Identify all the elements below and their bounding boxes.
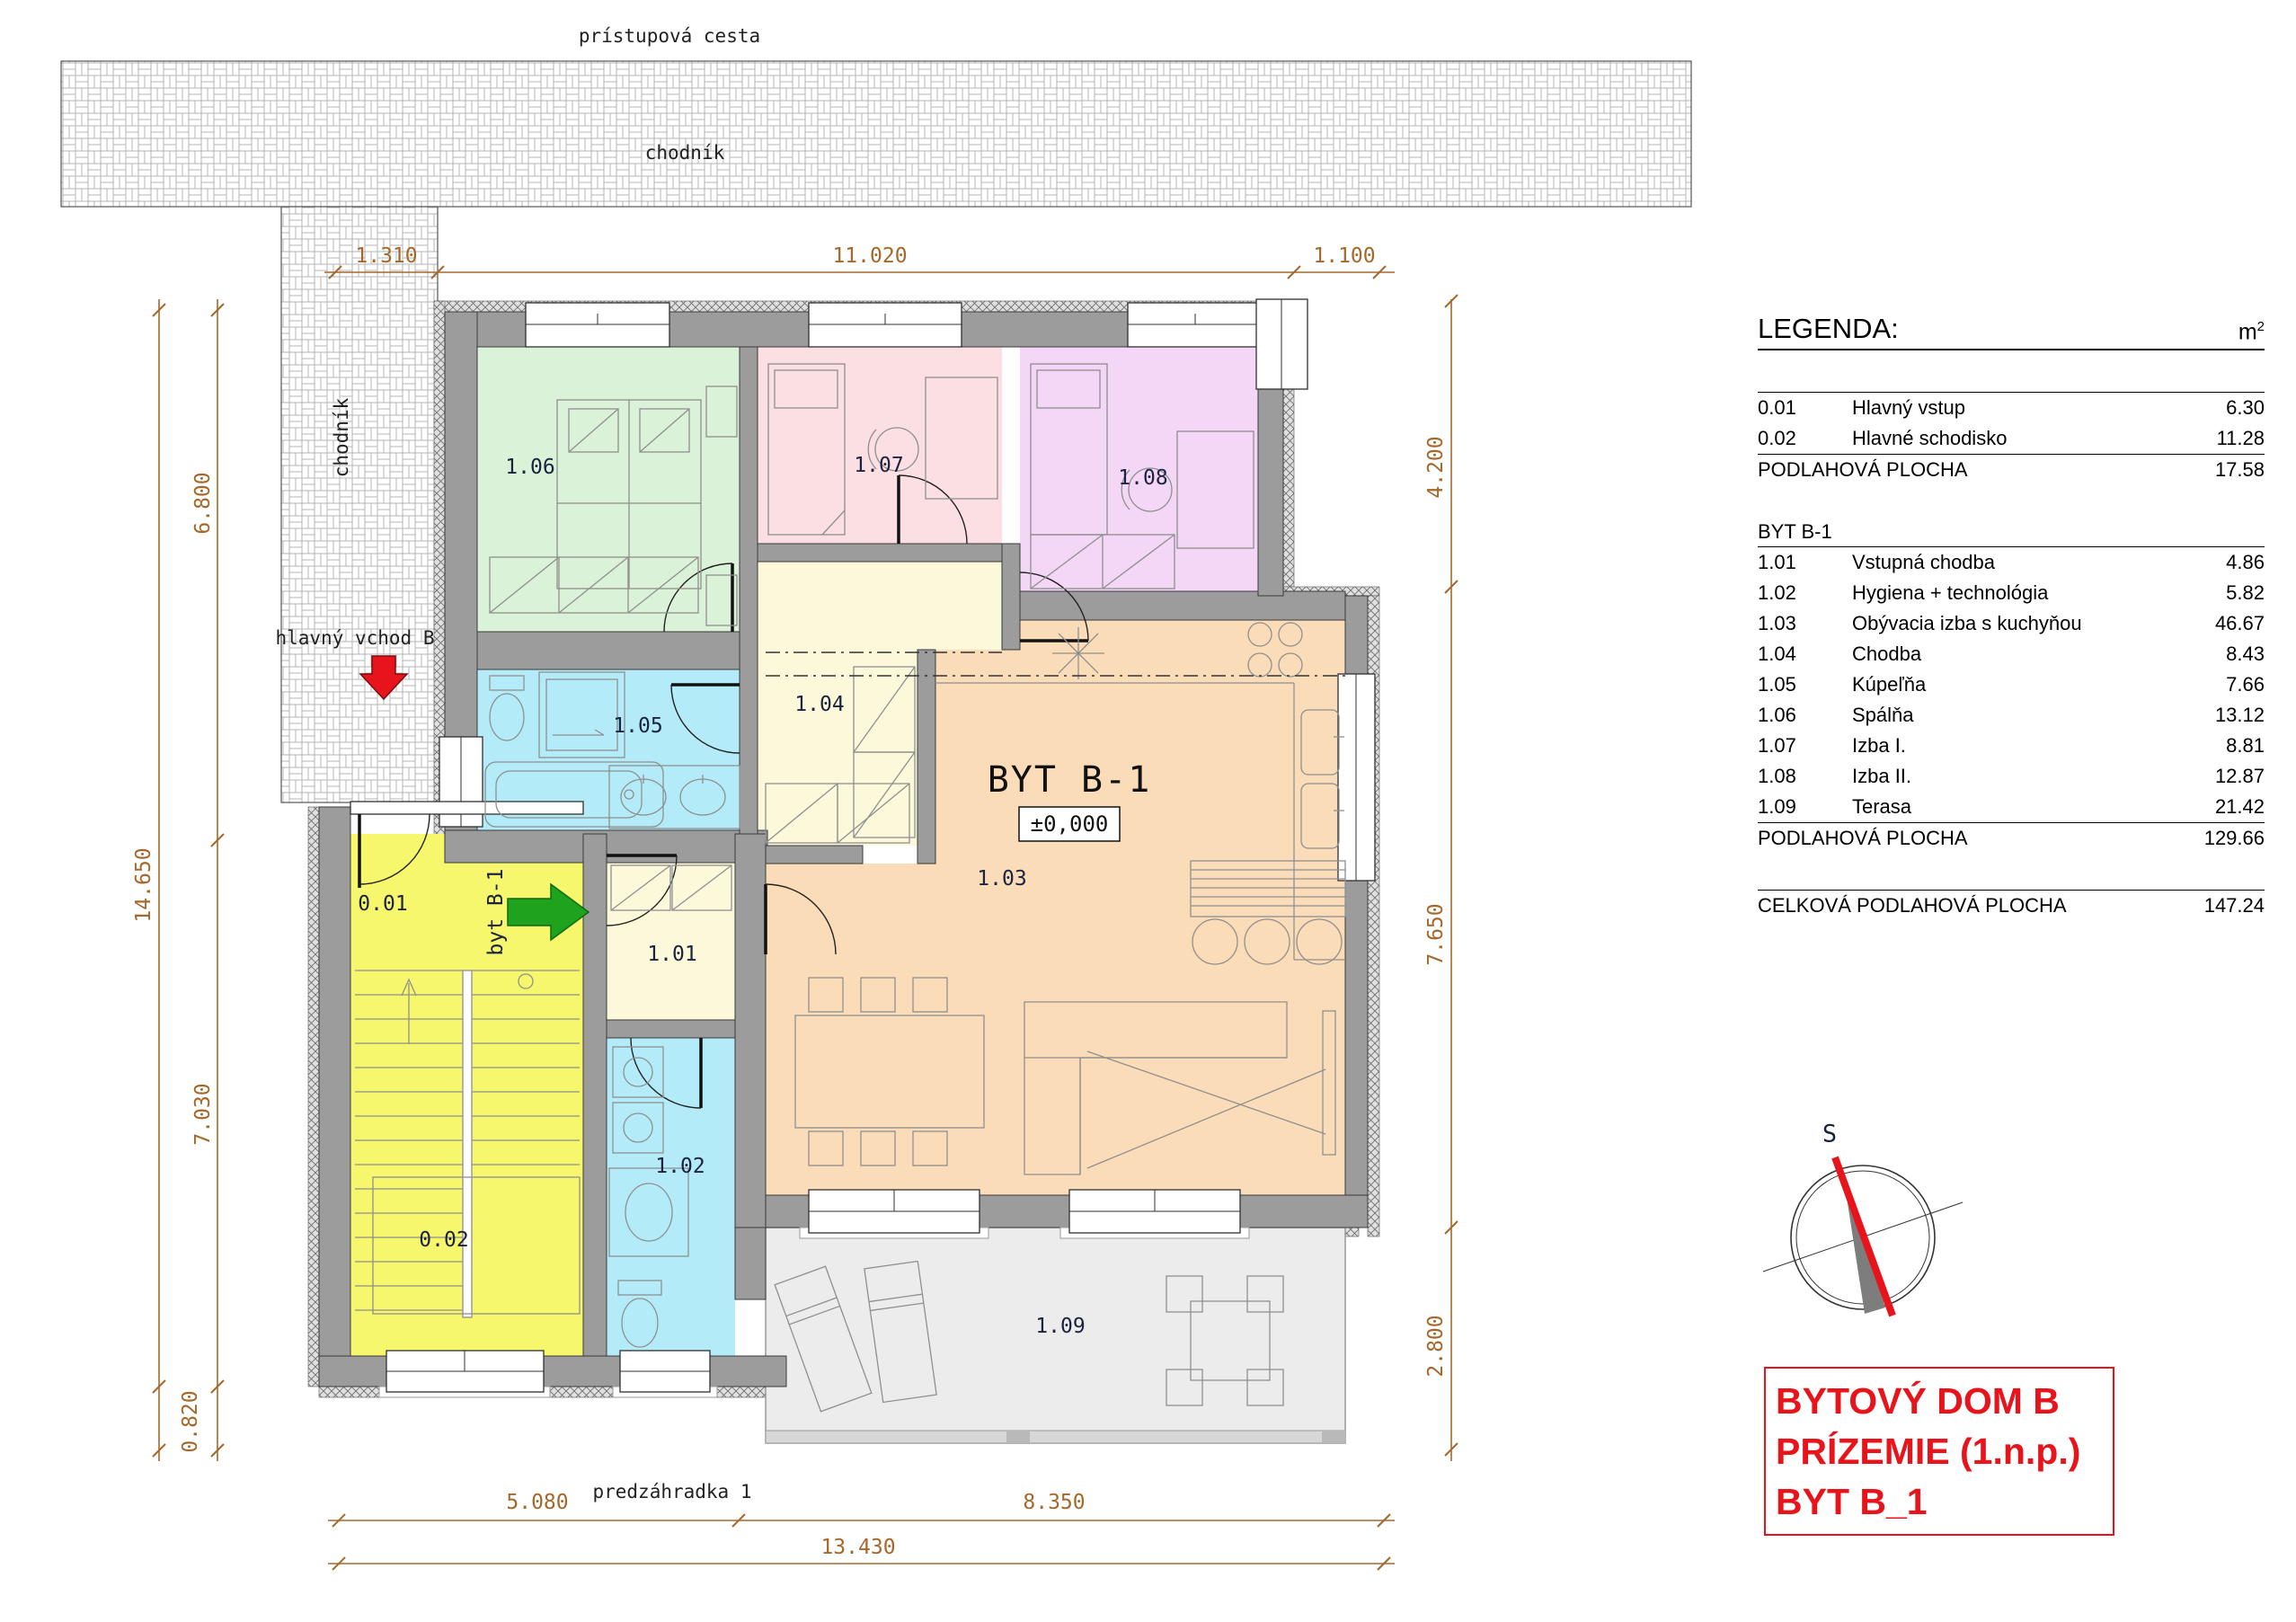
window: [1128, 303, 1263, 347]
dim-2800: 2.800: [1424, 1315, 1448, 1377]
room-label-101: 1.01: [647, 943, 696, 966]
room-label-103: 1.03: [977, 867, 1026, 891]
dim-11020: 11.020: [832, 244, 907, 268]
dim-7030: 7.030: [191, 1083, 215, 1145]
room-label-108: 1.08: [1118, 466, 1167, 490]
legend-row: 1.06Spálňa13.12: [1758, 700, 2265, 731]
sidewalk-left-label: chodník: [331, 397, 352, 477]
dim-1310: 1.310: [355, 244, 417, 268]
window: [526, 303, 669, 347]
access-road-label: prístupová cesta: [579, 25, 760, 47]
apartment-title: BYT B-1: [988, 759, 1152, 801]
window: [379, 1351, 550, 1397]
terrace-post: [1322, 1431, 1345, 1443]
room-label-102: 1.02: [655, 1155, 705, 1178]
legend-common-rows: 0.01Hlavný vstup6.30 0.02Hlavné schodisk…: [1758, 392, 2265, 485]
window: [1338, 674, 1375, 881]
dim-0820: 0.820: [179, 1390, 202, 1452]
terrace-door-window: [1060, 1190, 1249, 1238]
floor-plan-page: S prístupová cesta chodník chodník hlavn…: [0, 0, 2296, 1622]
entry-arrow-label: byt B-1: [484, 869, 508, 956]
legend-row: 1.07Izba I.8.81: [1758, 731, 2265, 761]
terrace-post: [1006, 1431, 1030, 1443]
room-label-109: 1.09: [1035, 1315, 1085, 1338]
terrace-curb: [766, 1431, 1345, 1443]
window: [613, 1351, 717, 1397]
title-line-1: BYTOVÝ DOM B: [1776, 1376, 2113, 1426]
legend-panel: LEGENDA: m2 0.01Hlavný vstup6.30 0.02Hla…: [1758, 313, 2265, 921]
legend-grand-total: CELKOVÁ PODLAHOVÁ PLOCHA147.24: [1758, 890, 2265, 921]
dim-14650: 14.650: [132, 847, 155, 922]
compass-north-label: S: [1822, 1121, 1837, 1148]
legend-unit: m2: [2238, 319, 2265, 345]
legend-byt-total: PODLAHOVÁ PLOCHA129.66: [1758, 822, 2265, 854]
legend-row: 1.08Izba II.12.87: [1758, 761, 2265, 792]
dim-13430: 13.430: [820, 1536, 895, 1559]
dim-5080: 5.080: [506, 1491, 568, 1514]
legend-row: 1.09Terasa21.42: [1758, 792, 2265, 822]
legend-byt-rows: 1.01Vstupná chodba4.86 1.02Hygiena + tec…: [1758, 546, 2265, 854]
front-garden-label: predzáhradka 1: [592, 1481, 751, 1502]
dim-8350: 8.350: [1023, 1491, 1085, 1514]
corner-bay-window: [1256, 299, 1308, 389]
level-label: ±0,000: [1031, 811, 1109, 837]
legend-row: 0.02Hlavné schodisko11.28: [1758, 423, 2265, 454]
sidewalk-left: [281, 207, 438, 802]
dim-6800: 6.800: [191, 472, 215, 534]
dim-7650: 7.650: [1424, 903, 1448, 965]
sidewalk-top: [61, 61, 1691, 207]
legend-byt-header: BYT B-1: [1758, 518, 2265, 546]
room-label-001: 0.01: [358, 892, 407, 916]
title-line-3: BYT B_1: [1776, 1476, 2113, 1527]
title-line-2: PRÍZEMIE (1.n.p.): [1776, 1426, 2113, 1476]
entrance-glazing: [350, 802, 583, 814]
legend-row: 1.01Vstupná chodba4.86: [1758, 547, 2265, 578]
room-label-002: 0.02: [419, 1228, 468, 1252]
legend-title: LEGENDA:: [1758, 313, 1899, 345]
room-label-106: 1.06: [505, 456, 554, 479]
room-label-104: 1.04: [794, 693, 844, 716]
title-block: BYTOVÝ DOM B PRÍZEMIE (1.n.p.) BYT B_1: [1764, 1367, 2114, 1536]
dim-1100: 1.100: [1313, 244, 1375, 268]
legend-row: 1.03Obývacia izba s kuchyňou46.67: [1758, 608, 2265, 639]
sidewalk-top-label: chodník: [645, 142, 725, 164]
room-label-105: 1.05: [613, 714, 662, 738]
legend-title-row: LEGENDA: m2: [1758, 313, 2265, 350]
north-compass: S: [1763, 1121, 1963, 1316]
legend-row: 1.04Chodba8.43: [1758, 639, 2265, 669]
legend-row: 1.05Kúpeľňa7.66: [1758, 669, 2265, 700]
room-label-107: 1.07: [854, 454, 903, 477]
main-entrance-label: hlavný vchod B: [275, 627, 434, 649]
legend-row: 1.02Hygiena + technológia5.82: [1758, 578, 2265, 608]
room-107-izba1: [758, 347, 1002, 544]
dim-4200: 4.200: [1424, 436, 1448, 498]
window: [809, 303, 962, 347]
terrace-door-window: [800, 1190, 988, 1238]
legend-row: 0.01Hlavný vstup6.30: [1758, 393, 2265, 423]
legend-common-total: PODLAHOVÁ PLOCHA17.58: [1758, 454, 2265, 485]
